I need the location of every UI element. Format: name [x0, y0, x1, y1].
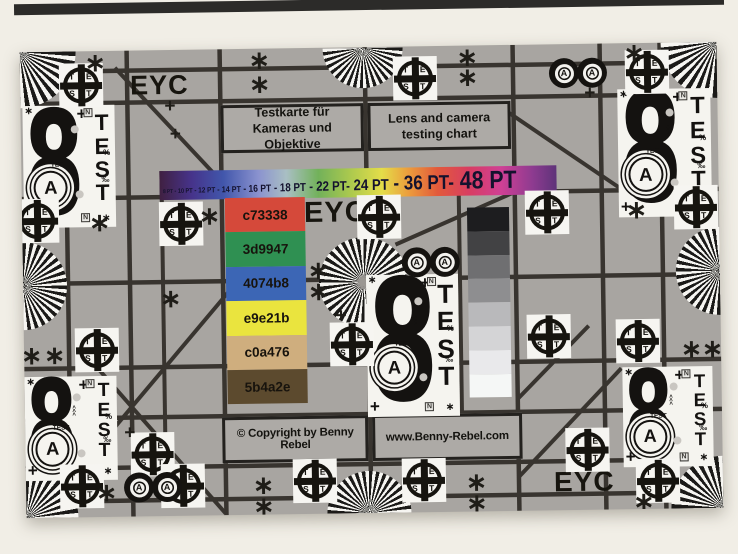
crosshair-letter: E — [87, 473, 93, 482]
crosshair-letter: T — [42, 225, 47, 234]
crosshair-letter: S — [635, 76, 641, 85]
crosshair-letter: T — [69, 72, 74, 81]
crosshair-target: TEST — [357, 195, 402, 240]
asterisk-mark: ∗ — [681, 337, 702, 362]
crosshair-letter: T — [420, 82, 425, 91]
crosshair-letter: T — [186, 228, 191, 237]
crosshair-letter: S — [303, 485, 309, 494]
crosshair-letter: E — [701, 194, 707, 203]
test-chart-card: 8 PT - 10 PT - 12 PT - 14 PT - 16 PT - 1… — [20, 42, 724, 518]
crosshair-hbar — [617, 337, 659, 345]
plus-mark: + — [335, 306, 346, 325]
crosshair-letter: S — [85, 354, 91, 363]
plus-mark: + — [124, 424, 135, 443]
crosshair-letter: E — [663, 468, 669, 477]
crosshair-letter: S — [70, 490, 76, 499]
asterisk-mark: ∗ — [96, 481, 117, 506]
crosshair-letter: S — [169, 228, 175, 237]
crosshair-letter: E — [652, 59, 658, 68]
crosshair-letter: S — [626, 345, 632, 354]
asterisk-mark: ∗ — [21, 344, 42, 369]
crosshair-letter: S — [25, 225, 31, 234]
asterisk-mark: ∗ — [253, 494, 274, 518]
infinity8-letter: A — [407, 253, 426, 272]
crosshair-letter: T — [554, 340, 559, 349]
crosshair-letter: S — [403, 82, 409, 91]
crosshair-letter: E — [157, 441, 163, 450]
crosshair-target: TEST — [75, 328, 120, 373]
crosshair-letter: E — [188, 473, 194, 482]
plus-mark: + — [170, 125, 181, 144]
infinity8-disc: A — [430, 247, 460, 277]
crosshair-letter: T — [357, 348, 362, 357]
crosshair-letter: E — [552, 199, 558, 208]
crosshair-letter: T — [87, 490, 92, 499]
crosshair-letter: T — [102, 354, 107, 363]
crosshair-letter: T — [535, 199, 540, 208]
crosshair-letter: T — [25, 208, 30, 217]
crosshair-letter: E — [186, 211, 192, 220]
crosshair-letter: T — [663, 485, 668, 494]
crosshair-letter: T — [643, 345, 648, 354]
crosshair-letter: S — [141, 458, 147, 467]
crosshair-letter: T — [384, 221, 389, 230]
infinity8-disc: A — [124, 472, 154, 502]
crosshair-target: TEST — [293, 459, 338, 504]
crosshair-letter: E — [42, 208, 48, 217]
asterisk-mark: ∗ — [466, 491, 487, 516]
infinity8-disc: A — [549, 58, 579, 88]
asterisk-mark: ∗ — [626, 198, 647, 223]
crosshair-letter: S — [684, 211, 690, 220]
asterisk-mark: ∗ — [249, 72, 270, 97]
asterisk-mark: ∗ — [44, 344, 65, 369]
crosshair-letter: E — [643, 328, 649, 337]
infinity8-target: AA — [124, 472, 180, 503]
crosshair-target: TEST — [674, 185, 719, 230]
asterisk-mark: ∗ — [457, 65, 478, 90]
crosshair-letter: E — [384, 204, 390, 213]
crosshair-letter: S — [340, 348, 346, 357]
crosshair-hbar — [294, 477, 336, 485]
crosshair-hbar — [76, 346, 118, 354]
crosshair-hbar — [403, 476, 445, 484]
asterisk-mark: ∗ — [85, 51, 106, 76]
asterisk-mark: ∗ — [623, 42, 644, 66]
crosshair-letter: S — [535, 216, 541, 225]
infinity8-letter: A — [129, 478, 148, 497]
crosshair-letter: T — [86, 89, 91, 98]
infinity8-target: AA — [549, 58, 605, 89]
crosshair-letter: E — [554, 323, 560, 332]
crosshair-letter: S — [69, 89, 75, 98]
crosshair-target: TEST — [616, 319, 661, 364]
crosshair-letter: T — [652, 76, 657, 85]
crosshair-letter: T — [70, 473, 75, 482]
crosshair-hbar — [626, 68, 668, 76]
crosshair-target: TEST — [565, 427, 610, 472]
crosshair-hbar — [331, 340, 373, 348]
crosshair-hbar — [358, 213, 400, 221]
crosshair-hbar — [526, 209, 568, 217]
infinity8-letter: A — [435, 252, 454, 271]
infinity8-target: AA — [402, 247, 458, 278]
plus-mark: + — [584, 84, 595, 103]
crosshair-hbar — [60, 81, 102, 89]
asterisk-mark: ∗ — [89, 211, 110, 236]
crosshair-letter: T — [85, 337, 90, 346]
crosshair-target: TEST — [402, 458, 447, 503]
crosshair-hbar — [637, 477, 679, 485]
crosshair-letter: T — [188, 490, 193, 499]
crosshair-letter: S — [576, 454, 582, 463]
crosshair-letter: T — [412, 467, 417, 476]
table-edge-strip — [14, 0, 724, 15]
crosshair-letter: T — [701, 211, 706, 220]
crosshair-letter: S — [412, 484, 418, 493]
asterisk-mark: ∗ — [633, 490, 654, 515]
crosshair-letter: E — [320, 468, 326, 477]
asterisk-mark: ∗ — [308, 280, 329, 305]
infinity8-letter: A — [157, 477, 176, 496]
crosshair-target: TEST — [330, 322, 375, 367]
asterisk-mark: ∗ — [199, 204, 220, 229]
crosshair-hbar — [394, 75, 436, 83]
crosshair-letter: T — [303, 468, 308, 477]
crosshair-hbar — [675, 203, 717, 211]
crosshair-letter: T — [626, 328, 631, 337]
crosshair-letter: T — [367, 204, 372, 213]
crosshair-letter: T — [593, 454, 598, 463]
plus-mark: + — [164, 97, 175, 116]
crosshair-letter: T — [403, 65, 408, 74]
crosshair-letter: T — [552, 216, 557, 225]
crosshair-target: TEST — [159, 201, 204, 246]
crosshair-letter: E — [592, 437, 598, 446]
crosshair-letter: E — [357, 331, 363, 340]
crosshair-letter: E — [429, 467, 435, 476]
crosshair-target: TEST — [527, 314, 572, 359]
crosshair-letter: T — [646, 468, 651, 477]
crosshair-hbar — [132, 450, 174, 458]
crosshair-letter: T — [340, 331, 345, 340]
target-mark-group: TESTTESTTESTTESTTESTTESTTESTTESTTESTTEST… — [20, 42, 724, 518]
crosshair-letter: T — [320, 485, 325, 494]
asterisk-mark: ∗ — [160, 287, 181, 312]
crosshair-letter: T — [169, 211, 174, 220]
crosshair-target: TEST — [20, 199, 60, 244]
infinity8-disc: A — [152, 472, 182, 502]
crosshair-target: TEST — [525, 190, 570, 235]
infinity8-disc: A — [402, 247, 432, 277]
asterisk-mark: ∗ — [702, 337, 723, 362]
crosshair-letter: T — [684, 194, 689, 203]
crosshair-letter: T — [140, 441, 145, 450]
crosshair-target: TEST — [393, 56, 438, 101]
infinity8-letter: A — [582, 63, 601, 82]
infinity8-letter: A — [554, 63, 573, 82]
crosshair-letter: S — [367, 221, 373, 230]
crosshair-hbar — [160, 220, 202, 228]
crosshair-letter: S — [537, 340, 543, 349]
crosshair-hbar — [566, 446, 608, 454]
crosshair-letter: E — [102, 337, 108, 346]
photo-background: 8 PT - 10 PT - 12 PT - 14 PT - 16 PT - 1… — [0, 0, 738, 554]
crosshair-hbar — [528, 333, 570, 341]
crosshair-letter: T — [537, 323, 542, 332]
crosshair-letter: E — [420, 65, 426, 74]
crosshair-letter: T — [575, 437, 580, 446]
crosshair-letter: T — [429, 484, 434, 493]
